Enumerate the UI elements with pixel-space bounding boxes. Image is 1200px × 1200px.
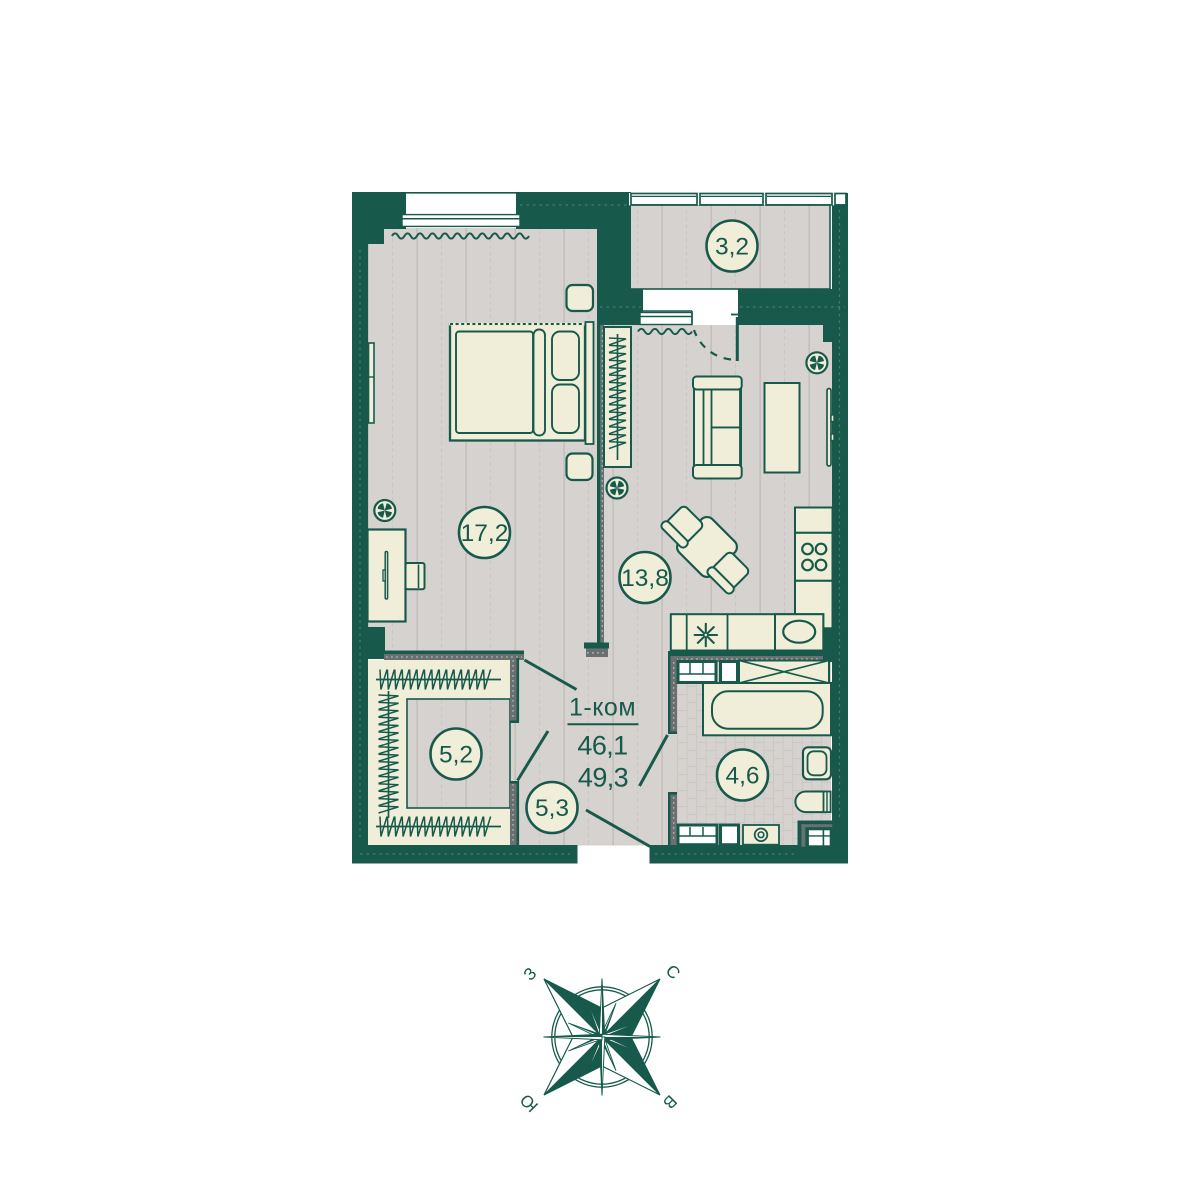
svg-text:49,3: 49,3 [578,763,628,793]
svg-text:13,8: 13,8 [621,565,669,592]
svg-text:17,2: 17,2 [461,520,509,547]
svg-text:З: З [520,964,541,985]
svg-text:5,2: 5,2 [439,742,473,769]
svg-text:Ю: Ю [516,1090,542,1116]
svg-text:В: В [659,1091,680,1112]
svg-text:С: С [662,961,684,983]
svg-text:1-ком: 1-ком [569,694,636,722]
svg-text:5,3: 5,3 [535,795,569,822]
svg-text:4,6: 4,6 [725,763,759,790]
svg-text:46,1: 46,1 [577,731,627,761]
svg-text:3,2: 3,2 [715,234,749,261]
